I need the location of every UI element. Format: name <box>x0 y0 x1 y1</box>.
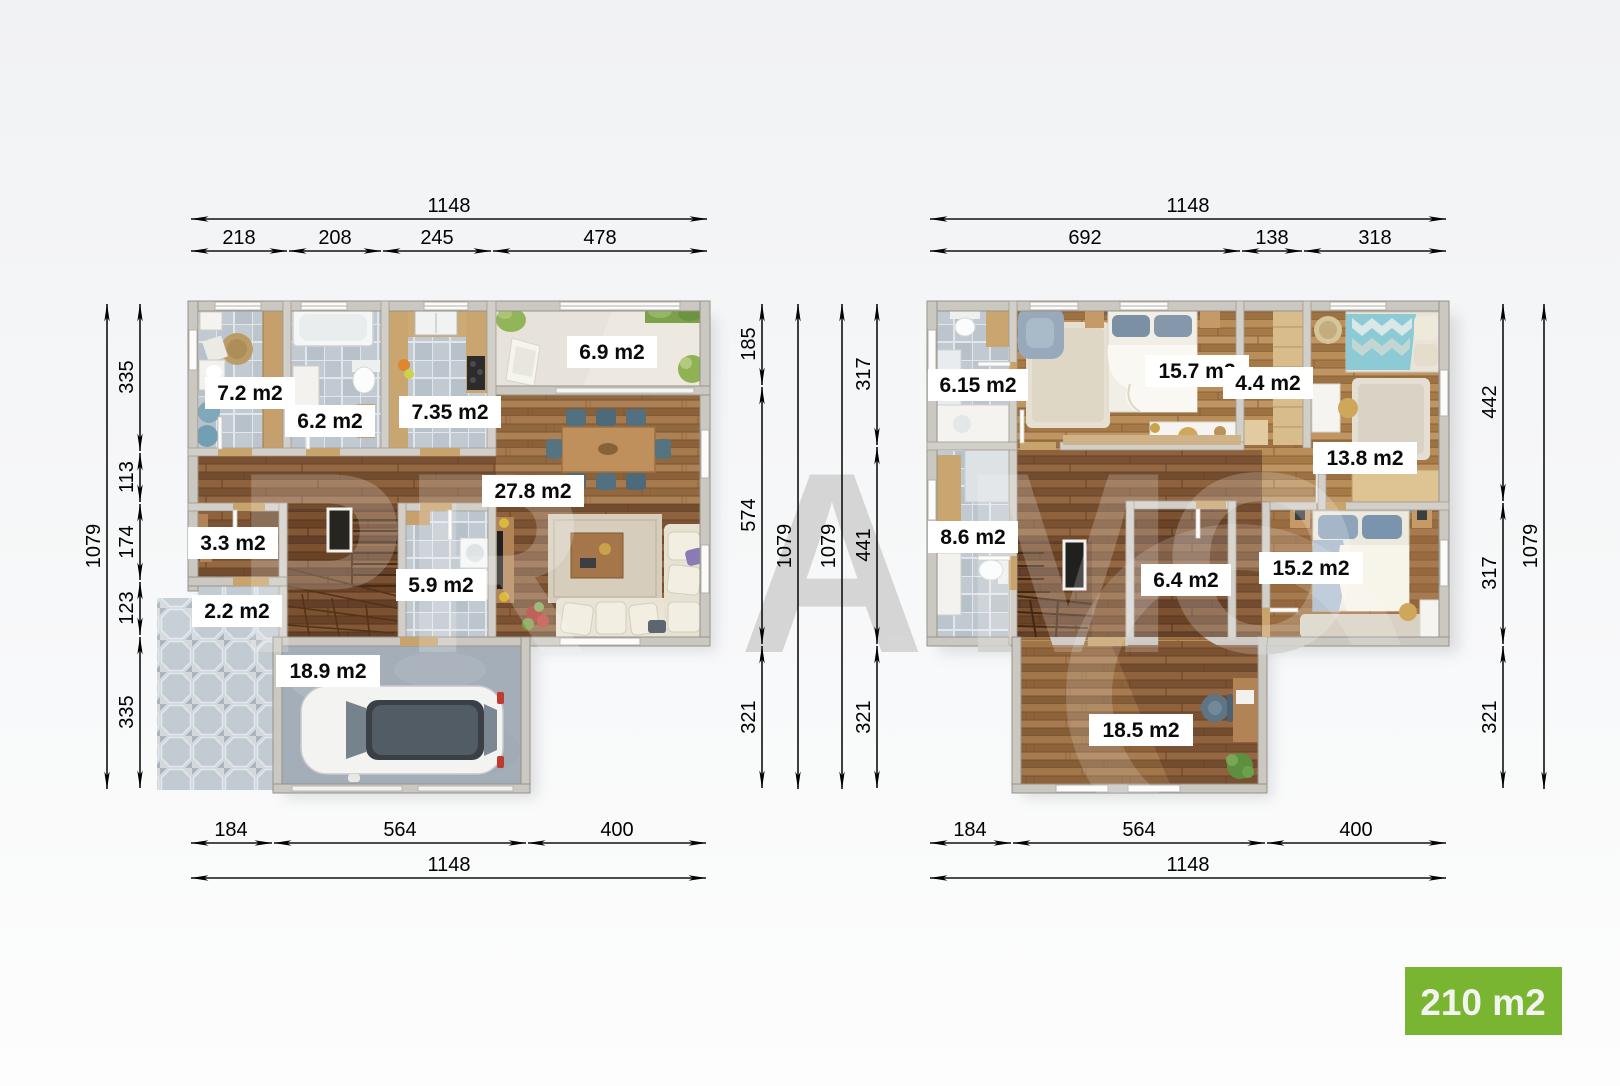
svg-text:317: 317 <box>1479 556 1501 589</box>
svg-text:318: 318 <box>1358 227 1391 249</box>
svg-text:1148: 1148 <box>1166 195 1209 217</box>
svg-text:335: 335 <box>116 695 138 728</box>
svg-text:692: 692 <box>1068 227 1101 249</box>
svg-text:184: 184 <box>953 819 986 841</box>
svg-text:1079: 1079 <box>83 524 105 569</box>
svg-text:18.9 m2: 18.9 m2 <box>289 660 366 683</box>
svg-text:321: 321 <box>1479 700 1501 733</box>
svg-text:15.2 m2: 15.2 m2 <box>1272 557 1349 580</box>
svg-text:4.4 m2: 4.4 m2 <box>1235 372 1300 395</box>
svg-text:317: 317 <box>853 357 875 390</box>
svg-text:27.8 m2: 27.8 m2 <box>494 480 571 503</box>
svg-text:564: 564 <box>1122 819 1155 841</box>
svg-text:1148: 1148 <box>1166 854 1209 876</box>
svg-text:113: 113 <box>116 461 138 493</box>
svg-text:400: 400 <box>1339 819 1372 841</box>
svg-text:123: 123 <box>116 591 138 624</box>
svg-text:218: 218 <box>222 227 255 249</box>
svg-text:174: 174 <box>116 525 138 558</box>
svg-text:5.9 m2: 5.9 m2 <box>408 574 473 597</box>
svg-text:1079: 1079 <box>774 524 796 569</box>
svg-text:210 m2: 210 m2 <box>1420 982 1546 1023</box>
svg-text:6.9 m2: 6.9 m2 <box>579 341 644 364</box>
svg-text:R: R <box>402 418 588 707</box>
svg-text:1079: 1079 <box>1520 524 1542 569</box>
svg-text:245: 245 <box>420 227 453 249</box>
svg-text:2.2 m2: 2.2 m2 <box>204 600 269 623</box>
svg-text:6.4 m2: 6.4 m2 <box>1153 569 1218 592</box>
svg-text:1148: 1148 <box>427 854 470 876</box>
svg-text:478: 478 <box>583 227 616 249</box>
svg-text:13.8 m2: 13.8 m2 <box>1326 447 1403 470</box>
svg-text:208: 208 <box>318 227 351 249</box>
svg-text:6.15 m2: 6.15 m2 <box>939 374 1016 397</box>
svg-text:321: 321 <box>738 700 760 733</box>
svg-text:6.2 m2: 6.2 m2 <box>297 410 362 433</box>
svg-text:3.3 m2: 3.3 m2 <box>200 532 265 555</box>
svg-text:7.2 m2: 7.2 m2 <box>217 382 282 405</box>
svg-text:564: 564 <box>383 819 416 841</box>
svg-text:18.5 m2: 18.5 m2 <box>1102 719 1179 742</box>
svg-text:185: 185 <box>738 327 760 360</box>
svg-text:184: 184 <box>214 819 247 841</box>
svg-text:7.35 m2: 7.35 m2 <box>411 401 488 424</box>
svg-text:441: 441 <box>853 528 875 561</box>
svg-text:400: 400 <box>600 819 633 841</box>
svg-text:1079: 1079 <box>818 524 840 569</box>
svg-text:335: 335 <box>116 360 138 393</box>
svg-text:138: 138 <box>1255 227 1288 249</box>
svg-text:574: 574 <box>738 498 760 531</box>
svg-text:8.6 m2: 8.6 m2 <box>940 526 1005 549</box>
svg-text:321: 321 <box>853 700 875 733</box>
svg-text:1148: 1148 <box>427 195 470 217</box>
svg-text:442: 442 <box>1479 385 1501 418</box>
